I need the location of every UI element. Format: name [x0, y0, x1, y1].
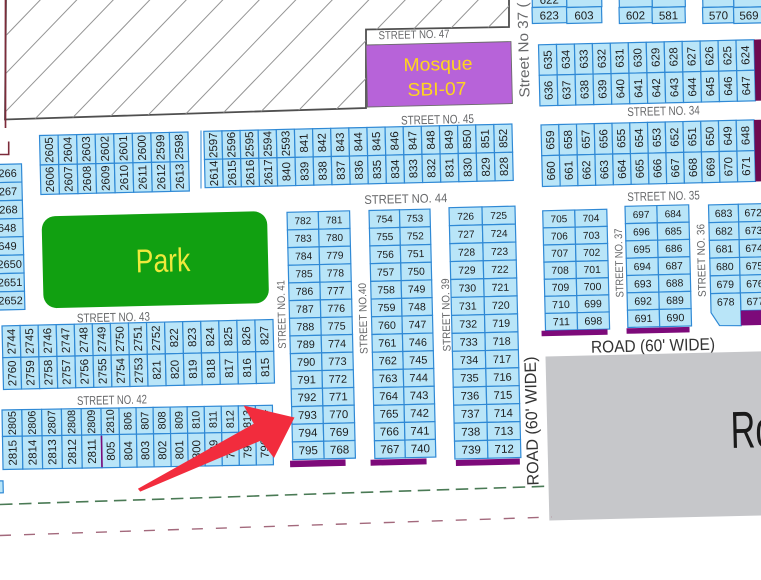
svg-text:769: 769 — [329, 427, 348, 439]
svg-text:846: 846 — [389, 131, 401, 150]
svg-text:845: 845 — [371, 132, 383, 151]
svg-text:STREET NO. 42: STREET NO. 42 — [77, 392, 147, 408]
svg-text:2750: 2750 — [114, 326, 127, 352]
svg-text:826: 826 — [241, 326, 253, 345]
svg-text:2613: 2613 — [174, 163, 187, 189]
svg-text:2758: 2758 — [43, 360, 56, 386]
svg-text:2599: 2599 — [155, 134, 168, 160]
svg-text:2267: 2267 — [0, 186, 17, 199]
svg-text:751: 751 — [407, 249, 425, 260]
svg-text:710: 710 — [552, 299, 570, 311]
svg-text:719: 719 — [492, 318, 510, 330]
svg-text:681: 681 — [716, 243, 734, 255]
svg-text:722: 722 — [491, 265, 509, 276]
svg-text:2610: 2610 — [119, 165, 132, 191]
svg-text:632: 632 — [596, 49, 608, 68]
svg-text:709: 709 — [552, 283, 570, 294]
svg-text:653: 653 — [651, 128, 663, 147]
svg-text:811: 811 — [207, 411, 219, 428]
svg-text:2612: 2612 — [156, 164, 169, 190]
svg-text:660: 660 — [546, 161, 558, 180]
svg-text:739: 739 — [461, 444, 481, 456]
svg-text:SBI-07: SBI-07 — [407, 78, 466, 100]
svg-text:2747: 2747 — [60, 327, 73, 353]
svg-text:634: 634 — [560, 49, 572, 69]
svg-text:2813: 2813 — [47, 439, 59, 465]
svg-text:785: 785 — [295, 269, 313, 280]
svg-text:755: 755 — [376, 232, 393, 243]
svg-text:816: 816 — [242, 358, 254, 377]
svg-text:Mosque: Mosque — [403, 52, 472, 75]
svg-text:2757: 2757 — [61, 359, 74, 385]
svg-text:679: 679 — [716, 279, 734, 291]
svg-text:839: 839 — [299, 161, 311, 180]
svg-text:570: 570 — [709, 10, 728, 22]
svg-text:2616: 2616 — [245, 160, 258, 186]
svg-text:787: 787 — [296, 303, 314, 315]
svg-text:2606: 2606 — [44, 167, 57, 193]
svg-text:569: 569 — [739, 10, 758, 22]
svg-text:810: 810 — [190, 411, 202, 429]
svg-text:664: 664 — [617, 159, 629, 179]
svg-text:654: 654 — [634, 128, 646, 148]
svg-text:707: 707 — [551, 248, 569, 259]
svg-text:763: 763 — [379, 373, 398, 385]
svg-text:827: 827 — [259, 326, 271, 345]
svg-text:756: 756 — [377, 250, 395, 261]
svg-text:831: 831 — [444, 158, 456, 177]
svg-text:778: 778 — [327, 268, 345, 279]
svg-text:702: 702 — [583, 248, 601, 259]
svg-text:773: 773 — [328, 356, 347, 368]
svg-text:581: 581 — [659, 10, 678, 22]
svg-text:2609: 2609 — [100, 165, 113, 191]
svg-text:636: 636 — [543, 81, 555, 100]
svg-text:2755: 2755 — [97, 358, 110, 384]
svg-text:790: 790 — [297, 357, 316, 369]
svg-text:2600: 2600 — [137, 135, 150, 161]
svg-text:729: 729 — [458, 265, 476, 276]
svg-text:689: 689 — [666, 295, 684, 307]
svg-text:817: 817 — [224, 359, 236, 378]
svg-text:715: 715 — [493, 390, 512, 402]
svg-text:764: 764 — [379, 391, 398, 403]
svg-text:661: 661 — [563, 161, 575, 180]
svg-text:2815: 2815 — [7, 440, 19, 466]
svg-text:838: 838 — [317, 161, 329, 180]
svg-text:640: 640 — [615, 79, 627, 98]
svg-text:629: 629 — [650, 48, 662, 67]
svg-text:703: 703 — [583, 231, 600, 242]
svg-text:720: 720 — [492, 300, 510, 312]
svg-text:2760: 2760 — [7, 360, 20, 386]
svg-text:676: 676 — [746, 278, 761, 290]
svg-text:774: 774 — [328, 338, 346, 350]
svg-text:2595: 2595 — [244, 131, 257, 157]
svg-text:STREET NO. 37: STREET NO. 37 — [613, 228, 627, 297]
svg-text:771: 771 — [329, 391, 348, 403]
svg-text:837: 837 — [335, 161, 347, 180]
svg-text:823: 823 — [187, 328, 199, 347]
svg-text:727: 727 — [458, 229, 475, 240]
svg-text:750: 750 — [407, 267, 425, 278]
svg-text:705: 705 — [550, 214, 567, 225]
svg-text:851: 851 — [480, 129, 492, 148]
svg-text:665: 665 — [634, 159, 646, 178]
svg-text:815: 815 — [260, 358, 272, 377]
svg-text:793: 793 — [298, 410, 317, 422]
svg-text:730: 730 — [459, 283, 477, 294]
svg-text:680: 680 — [716, 261, 734, 273]
svg-text:821: 821 — [151, 360, 163, 379]
svg-text:682: 682 — [715, 226, 733, 238]
svg-text:809: 809 — [173, 411, 185, 429]
svg-text:842: 842 — [317, 133, 329, 152]
svg-text:822: 822 — [169, 328, 181, 347]
svg-text:645: 645 — [705, 77, 717, 96]
svg-text:734: 734 — [460, 354, 479, 366]
svg-text:789: 789 — [297, 339, 315, 351]
svg-text:2806: 2806 — [26, 411, 38, 435]
svg-text:627: 627 — [686, 47, 698, 66]
svg-text:2753: 2753 — [133, 357, 146, 383]
svg-text:694: 694 — [634, 262, 652, 273]
svg-text:2594: 2594 — [262, 130, 275, 156]
svg-text:2617: 2617 — [263, 159, 276, 185]
svg-text:829: 829 — [480, 157, 492, 176]
svg-text:2745: 2745 — [24, 328, 37, 354]
svg-text:684: 684 — [665, 209, 682, 220]
svg-text:752: 752 — [407, 231, 424, 242]
svg-text:758: 758 — [377, 285, 395, 296]
svg-text:2615: 2615 — [227, 160, 240, 186]
svg-text:795: 795 — [299, 445, 319, 457]
svg-text:671: 671 — [741, 157, 753, 176]
svg-text:731: 731 — [459, 300, 477, 312]
svg-text:2266: 2266 — [0, 168, 17, 181]
svg-text:2746: 2746 — [42, 328, 55, 354]
svg-text:812: 812 — [225, 410, 237, 428]
svg-text:766: 766 — [380, 426, 399, 438]
svg-text:777: 777 — [327, 286, 345, 297]
svg-text:657: 657 — [580, 129, 592, 148]
svg-text:603: 603 — [574, 10, 593, 22]
svg-text:638: 638 — [579, 80, 591, 99]
svg-text:697: 697 — [633, 210, 650, 221]
svg-text:737: 737 — [461, 408, 480, 420]
svg-text:673: 673 — [745, 225, 761, 237]
svg-text:712: 712 — [494, 444, 514, 456]
svg-text:805: 805 — [105, 441, 117, 460]
svg-text:2649: 2649 — [0, 241, 17, 254]
svg-text:Park: Park — [135, 241, 191, 279]
svg-text:693: 693 — [634, 279, 652, 290]
svg-text:658: 658 — [563, 130, 575, 149]
svg-text:2756: 2756 — [79, 359, 92, 385]
svg-text:2759: 2759 — [25, 360, 38, 386]
svg-text:840: 840 — [281, 162, 293, 181]
svg-text:644: 644 — [687, 77, 699, 97]
svg-text:820: 820 — [169, 360, 181, 379]
svg-text:674: 674 — [745, 243, 761, 255]
svg-text:2593: 2593 — [280, 131, 293, 157]
svg-text:844: 844 — [353, 131, 365, 151]
svg-text:824: 824 — [205, 327, 217, 347]
svg-text:695: 695 — [633, 244, 651, 255]
svg-text:836: 836 — [354, 160, 366, 179]
svg-text:711: 711 — [553, 316, 570, 328]
svg-text:825: 825 — [223, 327, 235, 346]
svg-text:639: 639 — [597, 79, 609, 98]
svg-text:754: 754 — [376, 214, 393, 225]
svg-text:678: 678 — [717, 296, 735, 308]
svg-text:783: 783 — [295, 234, 312, 245]
svg-text:642: 642 — [651, 78, 663, 97]
svg-text:700: 700 — [584, 282, 602, 293]
svg-text:747: 747 — [408, 319, 426, 331]
svg-text:STREET NO. 39: STREET NO. 39 — [440, 278, 454, 351]
svg-text:725: 725 — [490, 211, 507, 222]
svg-text:667: 667 — [670, 158, 682, 177]
svg-text:633: 633 — [578, 49, 590, 68]
svg-text:738: 738 — [461, 426, 480, 438]
svg-text:807: 807 — [139, 412, 151, 430]
svg-text:656: 656 — [598, 129, 610, 148]
svg-text:628: 628 — [668, 47, 680, 66]
svg-text:2652: 2652 — [0, 295, 23, 308]
svg-text:ROAD (60' WIDE): ROAD (60' WIDE) — [522, 356, 543, 485]
svg-text:Street No 37 (: Street No 37 ( — [515, 2, 533, 98]
svg-text:STREET NO. 47: STREET NO. 47 — [378, 29, 449, 43]
svg-text:728: 728 — [458, 247, 476, 258]
svg-text:767: 767 — [380, 444, 400, 456]
svg-text:779: 779 — [326, 251, 344, 262]
svg-text:648: 648 — [740, 126, 752, 145]
svg-text:848: 848 — [425, 130, 437, 149]
svg-text:622: 622 — [539, 0, 558, 7]
svg-text:663: 663 — [599, 160, 611, 179]
svg-text:STREET NO. 36: STREET NO. 36 — [695, 224, 709, 297]
svg-text:699: 699 — [584, 298, 602, 310]
svg-text:672: 672 — [744, 207, 761, 219]
svg-text:841: 841 — [299, 133, 311, 152]
svg-text:818: 818 — [206, 359, 218, 378]
svg-text:2651: 2651 — [0, 277, 22, 290]
svg-text:808: 808 — [156, 411, 168, 429]
svg-text:2597: 2597 — [208, 132, 221, 158]
svg-text:714: 714 — [494, 408, 513, 420]
svg-text:852: 852 — [498, 129, 510, 148]
svg-text:655: 655 — [616, 129, 628, 148]
svg-text:635: 635 — [543, 50, 555, 69]
svg-text:2596: 2596 — [226, 132, 239, 158]
svg-text:748: 748 — [408, 301, 426, 313]
svg-text:696: 696 — [633, 227, 650, 238]
svg-text:772: 772 — [329, 374, 348, 386]
svg-text:631: 631 — [614, 48, 626, 67]
svg-text:721: 721 — [492, 283, 510, 294]
svg-text:2602: 2602 — [99, 136, 112, 162]
svg-text:643: 643 — [669, 78, 681, 97]
svg-text:847: 847 — [407, 131, 419, 150]
svg-text:2748: 2748 — [78, 327, 91, 353]
svg-text:2749: 2749 — [96, 327, 109, 353]
svg-text:630: 630 — [632, 48, 644, 67]
svg-text:2603: 2603 — [81, 136, 94, 162]
svg-text:649: 649 — [722, 126, 734, 145]
svg-text:659: 659 — [545, 130, 557, 149]
svg-text:806: 806 — [122, 412, 134, 430]
svg-text:784: 784 — [295, 251, 313, 262]
svg-text:775: 775 — [328, 320, 346, 332]
svg-text:STREET NO. 35: STREET NO. 35 — [627, 188, 700, 204]
svg-text:662: 662 — [581, 160, 593, 179]
svg-text:688: 688 — [666, 278, 684, 289]
svg-text:666: 666 — [652, 159, 664, 178]
svg-text:2650: 2650 — [0, 259, 22, 272]
svg-text:761: 761 — [378, 337, 396, 349]
svg-text:623: 623 — [539, 10, 558, 22]
svg-text:2754: 2754 — [115, 357, 128, 383]
svg-text:736: 736 — [460, 390, 479, 402]
svg-text:718: 718 — [492, 336, 510, 348]
svg-text:753: 753 — [406, 213, 423, 224]
svg-text:749: 749 — [408, 284, 426, 295]
svg-text:STREET NO. 44: STREET NO. 44 — [364, 191, 447, 207]
svg-text:624: 624 — [740, 45, 752, 65]
svg-text:780: 780 — [326, 233, 343, 244]
svg-text:759: 759 — [378, 302, 396, 314]
svg-text:686: 686 — [665, 244, 683, 255]
svg-text:768: 768 — [330, 444, 350, 456]
svg-text:726: 726 — [457, 211, 474, 222]
svg-text:781: 781 — [326, 215, 343, 226]
svg-text:647: 647 — [741, 76, 753, 95]
svg-text:717: 717 — [493, 354, 512, 366]
svg-text:746: 746 — [409, 337, 427, 349]
svg-text:683: 683 — [715, 208, 733, 220]
svg-text:687: 687 — [665, 261, 683, 272]
svg-text:782: 782 — [294, 216, 311, 227]
svg-text:2268: 2268 — [0, 204, 18, 217]
svg-text:742: 742 — [410, 408, 429, 420]
svg-text:626: 626 — [704, 46, 716, 65]
svg-text:732: 732 — [459, 318, 477, 330]
svg-text:2611: 2611 — [137, 165, 150, 190]
svg-text:STREET NO.40: STREET NO.40 — [357, 283, 371, 354]
svg-text:668: 668 — [688, 158, 700, 177]
svg-text:849: 849 — [444, 130, 456, 149]
svg-text:652: 652 — [669, 127, 681, 146]
svg-text:692: 692 — [634, 296, 652, 308]
svg-text:850: 850 — [462, 129, 474, 148]
svg-text:835: 835 — [372, 160, 384, 179]
svg-text:669: 669 — [705, 157, 717, 176]
svg-text:2751: 2751 — [132, 326, 145, 352]
svg-text:625: 625 — [722, 46, 734, 65]
svg-text:2810: 2810 — [105, 409, 117, 433]
svg-text:843: 843 — [335, 132, 347, 151]
svg-text:STREET NO. 41: STREET NO. 41 — [275, 280, 289, 349]
svg-text:723: 723 — [491, 247, 509, 258]
svg-text:2601: 2601 — [118, 135, 131, 161]
svg-text:733: 733 — [460, 336, 478, 348]
svg-text:757: 757 — [377, 267, 395, 278]
svg-text:745: 745 — [409, 355, 428, 367]
svg-text:740: 740 — [411, 443, 431, 455]
svg-text:2598: 2598 — [174, 134, 187, 160]
svg-text:690: 690 — [666, 312, 684, 324]
svg-text:2807: 2807 — [46, 410, 58, 434]
svg-text:735: 735 — [460, 372, 479, 384]
svg-text:2608: 2608 — [82, 166, 95, 192]
svg-text:2812: 2812 — [67, 439, 79, 465]
svg-text:765: 765 — [379, 408, 398, 420]
svg-text:2814: 2814 — [27, 439, 39, 465]
svg-text:670: 670 — [723, 157, 735, 176]
svg-text:2607: 2607 — [63, 166, 76, 192]
svg-text:691: 691 — [635, 313, 653, 325]
svg-text:Ro: Ro — [730, 401, 761, 460]
svg-text:641: 641 — [633, 79, 645, 98]
svg-text:794: 794 — [298, 427, 318, 439]
svg-text:744: 744 — [409, 372, 428, 384]
svg-text:832: 832 — [426, 158, 438, 177]
svg-text:776: 776 — [327, 303, 345, 315]
svg-text:698: 698 — [584, 315, 602, 327]
svg-text:2744: 2744 — [6, 328, 19, 354]
svg-text:704: 704 — [583, 213, 600, 224]
svg-text:828: 828 — [499, 157, 511, 176]
svg-text:804: 804 — [123, 440, 135, 460]
svg-text:650: 650 — [705, 127, 717, 146]
svg-text:2614: 2614 — [208, 160, 221, 186]
svg-text:685: 685 — [665, 226, 682, 237]
svg-text:706: 706 — [551, 231, 568, 242]
svg-text:602: 602 — [626, 10, 645, 22]
svg-text:786: 786 — [296, 287, 314, 298]
svg-text:819: 819 — [187, 359, 199, 378]
svg-text:801: 801 — [174, 440, 186, 459]
svg-text:792: 792 — [298, 392, 317, 404]
svg-text:646: 646 — [723, 76, 735, 95]
svg-text:743: 743 — [410, 390, 429, 402]
svg-text:788: 788 — [296, 321, 314, 333]
svg-text:675: 675 — [746, 260, 761, 272]
svg-text:713: 713 — [494, 426, 513, 438]
svg-text:741: 741 — [410, 426, 429, 438]
svg-text:833: 833 — [408, 159, 420, 178]
svg-text:677: 677 — [746, 296, 761, 308]
svg-text:791: 791 — [297, 374, 316, 386]
svg-text:760: 760 — [378, 320, 396, 332]
svg-text:STREET NO. 34: STREET NO. 34 — [627, 103, 700, 119]
svg-text:2752: 2752 — [151, 325, 164, 351]
svg-text:708: 708 — [551, 266, 569, 277]
svg-text:2811: 2811 — [87, 439, 99, 464]
svg-text:716: 716 — [493, 372, 512, 384]
svg-text:802: 802 — [157, 440, 169, 459]
svg-text:834: 834 — [390, 159, 402, 179]
svg-text:2805: 2805 — [7, 411, 19, 435]
svg-text:2605: 2605 — [44, 137, 57, 163]
svg-text:637: 637 — [561, 80, 573, 99]
svg-text:803: 803 — [140, 441, 152, 460]
svg-text:2648: 2648 — [0, 222, 16, 235]
svg-text:701: 701 — [583, 265, 601, 276]
svg-text:770: 770 — [329, 409, 348, 421]
svg-text:762: 762 — [379, 355, 398, 367]
